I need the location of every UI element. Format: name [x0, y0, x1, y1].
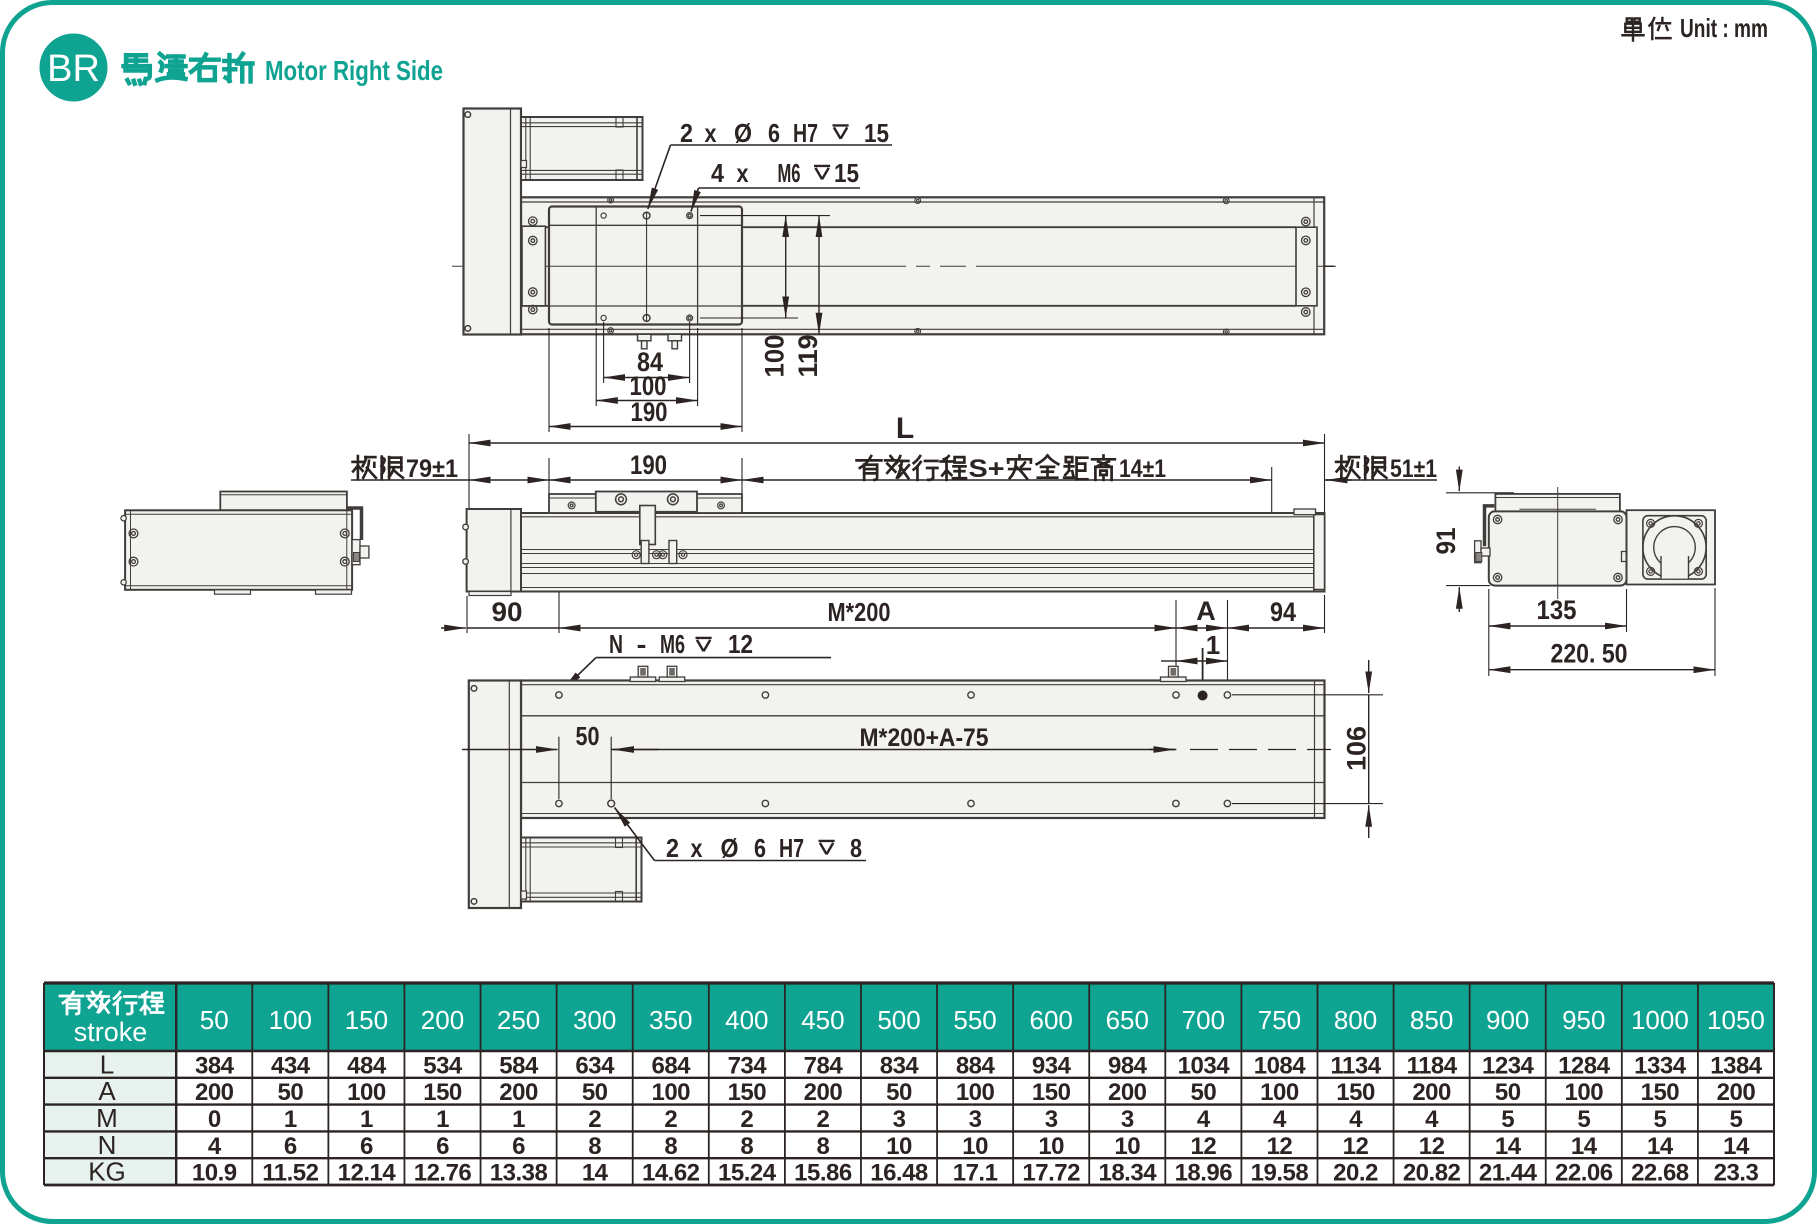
svg-text:N: N: [98, 1130, 117, 1160]
svg-text:stroke: stroke: [74, 1017, 148, 1047]
svg-text:14: 14: [1495, 1133, 1522, 1160]
svg-text:17.72: 17.72: [1022, 1160, 1080, 1187]
svg-text:434: 434: [271, 1052, 311, 1079]
svg-text:L: L: [100, 1049, 114, 1079]
svg-text:6: 6: [436, 1133, 449, 1160]
svg-text:Ø: Ø: [734, 118, 752, 148]
svg-text:5: 5: [1730, 1106, 1743, 1133]
svg-text:106: 106: [1342, 726, 1372, 771]
svg-text:135: 135: [1537, 595, 1577, 625]
svg-text:20.2: 20.2: [1333, 1160, 1378, 1187]
svg-text:1000: 1000: [1631, 1005, 1689, 1035]
svg-text:800: 800: [1334, 1005, 1377, 1035]
svg-text:L: L: [896, 412, 914, 445]
svg-text:22.06: 22.06: [1555, 1160, 1613, 1187]
svg-text:200: 200: [499, 1079, 538, 1106]
svg-text:950: 950: [1562, 1005, 1605, 1035]
svg-text:14: 14: [582, 1160, 609, 1187]
svg-text:384: 384: [195, 1052, 235, 1079]
svg-text:584: 584: [499, 1052, 539, 1079]
svg-text:10: 10: [1114, 1133, 1140, 1160]
svg-text:A: A: [1196, 596, 1216, 626]
svg-text:5: 5: [1577, 1106, 1590, 1133]
svg-text:1: 1: [1206, 630, 1220, 660]
svg-text:250: 250: [497, 1005, 540, 1035]
svg-text:2: 2: [740, 1106, 753, 1133]
svg-text:650: 650: [1106, 1005, 1149, 1035]
svg-text:12.14: 12.14: [338, 1160, 397, 1187]
svg-text:x: x: [691, 833, 703, 863]
svg-text:12: 12: [728, 629, 753, 659]
svg-text:600: 600: [1029, 1005, 1072, 1035]
svg-text:3: 3: [893, 1106, 906, 1133]
svg-text:6: 6: [360, 1133, 373, 1160]
svg-text:2: 2: [664, 1106, 677, 1133]
svg-text:850: 850: [1410, 1005, 1453, 1035]
svg-text:12: 12: [1267, 1133, 1293, 1160]
svg-text:22.68: 22.68: [1631, 1160, 1689, 1187]
svg-text:Motor Right Side: Motor Right Side: [265, 55, 443, 86]
svg-text:100: 100: [1565, 1079, 1604, 1106]
svg-text:400: 400: [725, 1005, 768, 1035]
svg-text:1: 1: [512, 1106, 525, 1133]
svg-text:6: 6: [512, 1133, 525, 1160]
svg-text:934: 934: [1032, 1052, 1072, 1079]
svg-text:4: 4: [1273, 1106, 1287, 1133]
svg-text:50: 50: [1495, 1079, 1521, 1106]
svg-text:14.62: 14.62: [642, 1160, 700, 1187]
svg-text:50: 50: [277, 1079, 303, 1106]
svg-text:200: 200: [1108, 1079, 1147, 1106]
svg-text:11.52: 11.52: [262, 1160, 318, 1187]
svg-text:1050: 1050: [1707, 1005, 1765, 1035]
svg-text:12.76: 12.76: [414, 1160, 472, 1187]
svg-text:3: 3: [1121, 1106, 1134, 1133]
svg-text:14: 14: [1723, 1133, 1750, 1160]
svg-text:12: 12: [1343, 1133, 1369, 1160]
svg-text:6: 6: [768, 118, 780, 148]
svg-text:19.58: 19.58: [1251, 1160, 1309, 1187]
svg-text:H7: H7: [779, 833, 804, 863]
svg-text:21.44: 21.44: [1479, 1160, 1538, 1187]
svg-text:8: 8: [740, 1133, 753, 1160]
svg-text:119: 119: [793, 335, 823, 378]
svg-text:15.86: 15.86: [794, 1160, 852, 1187]
svg-text:10: 10: [886, 1133, 912, 1160]
svg-text:5: 5: [1501, 1106, 1514, 1133]
svg-text:90: 90: [492, 597, 523, 627]
svg-text:100: 100: [651, 1079, 690, 1106]
svg-text:984: 984: [1108, 1052, 1148, 1079]
svg-text:14: 14: [1647, 1133, 1674, 1160]
svg-text:x: x: [705, 118, 717, 148]
svg-text:734: 734: [728, 1052, 768, 1079]
svg-text:51±1: 51±1: [1390, 455, 1437, 483]
svg-text:8: 8: [588, 1133, 601, 1160]
svg-text:x: x: [737, 158, 749, 188]
svg-text:4: 4: [711, 158, 724, 188]
svg-text:1: 1: [360, 1106, 373, 1133]
svg-text:50: 50: [200, 1005, 229, 1035]
svg-text:KG: KG: [88, 1157, 126, 1187]
svg-text:200: 200: [804, 1079, 843, 1106]
svg-text:220. 50: 220. 50: [1551, 639, 1628, 669]
svg-text:200: 200: [421, 1005, 464, 1035]
svg-text:750: 750: [1258, 1005, 1301, 1035]
svg-text:50: 50: [576, 721, 600, 751]
svg-text:14±1: 14±1: [1119, 455, 1166, 483]
svg-text:79±1: 79±1: [406, 455, 458, 483]
svg-text:13.38: 13.38: [490, 1160, 548, 1187]
svg-text:10: 10: [962, 1133, 988, 1160]
svg-text:100: 100: [1260, 1079, 1299, 1106]
svg-text:500: 500: [877, 1005, 920, 1035]
svg-text:4: 4: [1197, 1106, 1211, 1133]
svg-text:17.1: 17.1: [953, 1160, 998, 1187]
svg-text:H7: H7: [793, 118, 818, 148]
svg-text:350: 350: [649, 1005, 692, 1035]
svg-text:2: 2: [666, 833, 679, 863]
svg-text:12: 12: [1191, 1133, 1217, 1160]
svg-text:1: 1: [284, 1106, 297, 1133]
svg-text:4: 4: [1349, 1106, 1363, 1133]
svg-text:M: M: [96, 1103, 118, 1133]
svg-text:Ø: Ø: [721, 833, 739, 863]
svg-text:Unit : mm: Unit : mm: [1680, 13, 1768, 43]
svg-text:550: 550: [953, 1005, 996, 1035]
svg-text:18.96: 18.96: [1175, 1160, 1233, 1187]
svg-text:15: 15: [834, 158, 859, 188]
svg-text:150: 150: [728, 1079, 767, 1106]
svg-text:M6: M6: [778, 158, 801, 188]
svg-text:20.82: 20.82: [1403, 1160, 1461, 1187]
svg-text:700: 700: [1182, 1005, 1225, 1035]
svg-text:18.34: 18.34: [1098, 1160, 1157, 1187]
svg-text:1134: 1134: [1330, 1052, 1381, 1079]
svg-text:190: 190: [631, 397, 668, 427]
svg-text:1284: 1284: [1558, 1052, 1611, 1079]
svg-text:3: 3: [969, 1106, 982, 1133]
svg-text:150: 150: [1032, 1079, 1071, 1106]
svg-text:900: 900: [1486, 1005, 1529, 1035]
svg-text:50: 50: [582, 1079, 608, 1106]
svg-text:5: 5: [1653, 1106, 1666, 1133]
svg-text:M6: M6: [660, 629, 685, 659]
svg-text:14: 14: [1571, 1133, 1598, 1160]
svg-text:50: 50: [1191, 1079, 1217, 1106]
svg-text:200: 200: [1412, 1079, 1451, 1106]
svg-text:94: 94: [1270, 597, 1296, 627]
svg-text:2: 2: [680, 118, 693, 148]
svg-text:1184: 1184: [1407, 1052, 1458, 1079]
svg-text:200: 200: [195, 1079, 234, 1106]
svg-text:4: 4: [1425, 1106, 1439, 1133]
svg-text:834: 834: [880, 1052, 920, 1079]
svg-text:A: A: [98, 1076, 116, 1106]
svg-text:8: 8: [816, 1133, 829, 1160]
svg-text:450: 450: [801, 1005, 844, 1035]
svg-text:150: 150: [1336, 1079, 1375, 1106]
svg-text:2: 2: [816, 1106, 829, 1133]
svg-text:10: 10: [1038, 1133, 1064, 1160]
svg-text:15: 15: [864, 118, 889, 148]
svg-text:1334: 1334: [1634, 1052, 1687, 1079]
svg-text:884: 884: [956, 1052, 996, 1079]
svg-text:1084: 1084: [1254, 1052, 1307, 1079]
svg-text:1: 1: [436, 1106, 449, 1133]
svg-text:784: 784: [804, 1052, 844, 1079]
svg-text:150: 150: [423, 1079, 462, 1106]
svg-text:4: 4: [208, 1133, 222, 1160]
svg-text:484: 484: [347, 1052, 387, 1079]
svg-text:1234: 1234: [1482, 1052, 1535, 1079]
svg-text:100: 100: [760, 335, 790, 378]
svg-text:15.24: 15.24: [718, 1160, 777, 1187]
svg-text:8: 8: [664, 1133, 677, 1160]
svg-text:1034: 1034: [1178, 1052, 1231, 1079]
svg-text:N: N: [609, 629, 623, 659]
svg-text:-: -: [637, 629, 647, 659]
svg-text:200: 200: [1717, 1079, 1756, 1106]
svg-text:534: 534: [423, 1052, 463, 1079]
svg-text:634: 634: [575, 1052, 615, 1079]
svg-text:M*200: M*200: [828, 597, 891, 627]
svg-text:50: 50: [886, 1079, 912, 1106]
svg-text:1384: 1384: [1710, 1052, 1763, 1079]
svg-text:S+: S+: [969, 455, 1005, 483]
svg-text:0: 0: [208, 1106, 221, 1133]
svg-text:12: 12: [1419, 1133, 1445, 1160]
svg-text:2: 2: [588, 1106, 601, 1133]
svg-text:300: 300: [573, 1005, 616, 1035]
svg-text:684: 684: [651, 1052, 691, 1079]
svg-text:100: 100: [956, 1079, 995, 1106]
svg-text:16.48: 16.48: [870, 1160, 928, 1187]
svg-text:BR: BR: [47, 48, 100, 90]
svg-text:23.3: 23.3: [1714, 1160, 1759, 1187]
svg-text:10.9: 10.9: [192, 1160, 237, 1187]
svg-text:150: 150: [345, 1005, 388, 1035]
svg-text:M*200+A-75: M*200+A-75: [860, 724, 989, 752]
svg-text:6: 6: [284, 1133, 297, 1160]
svg-text:3: 3: [1045, 1106, 1058, 1133]
svg-text:6: 6: [754, 833, 766, 863]
svg-text:100: 100: [347, 1079, 386, 1106]
svg-text:8: 8: [850, 833, 862, 863]
svg-text:91: 91: [1431, 528, 1461, 555]
svg-text:100: 100: [269, 1005, 312, 1035]
svg-text:190: 190: [630, 450, 667, 480]
svg-text:150: 150: [1641, 1079, 1680, 1106]
